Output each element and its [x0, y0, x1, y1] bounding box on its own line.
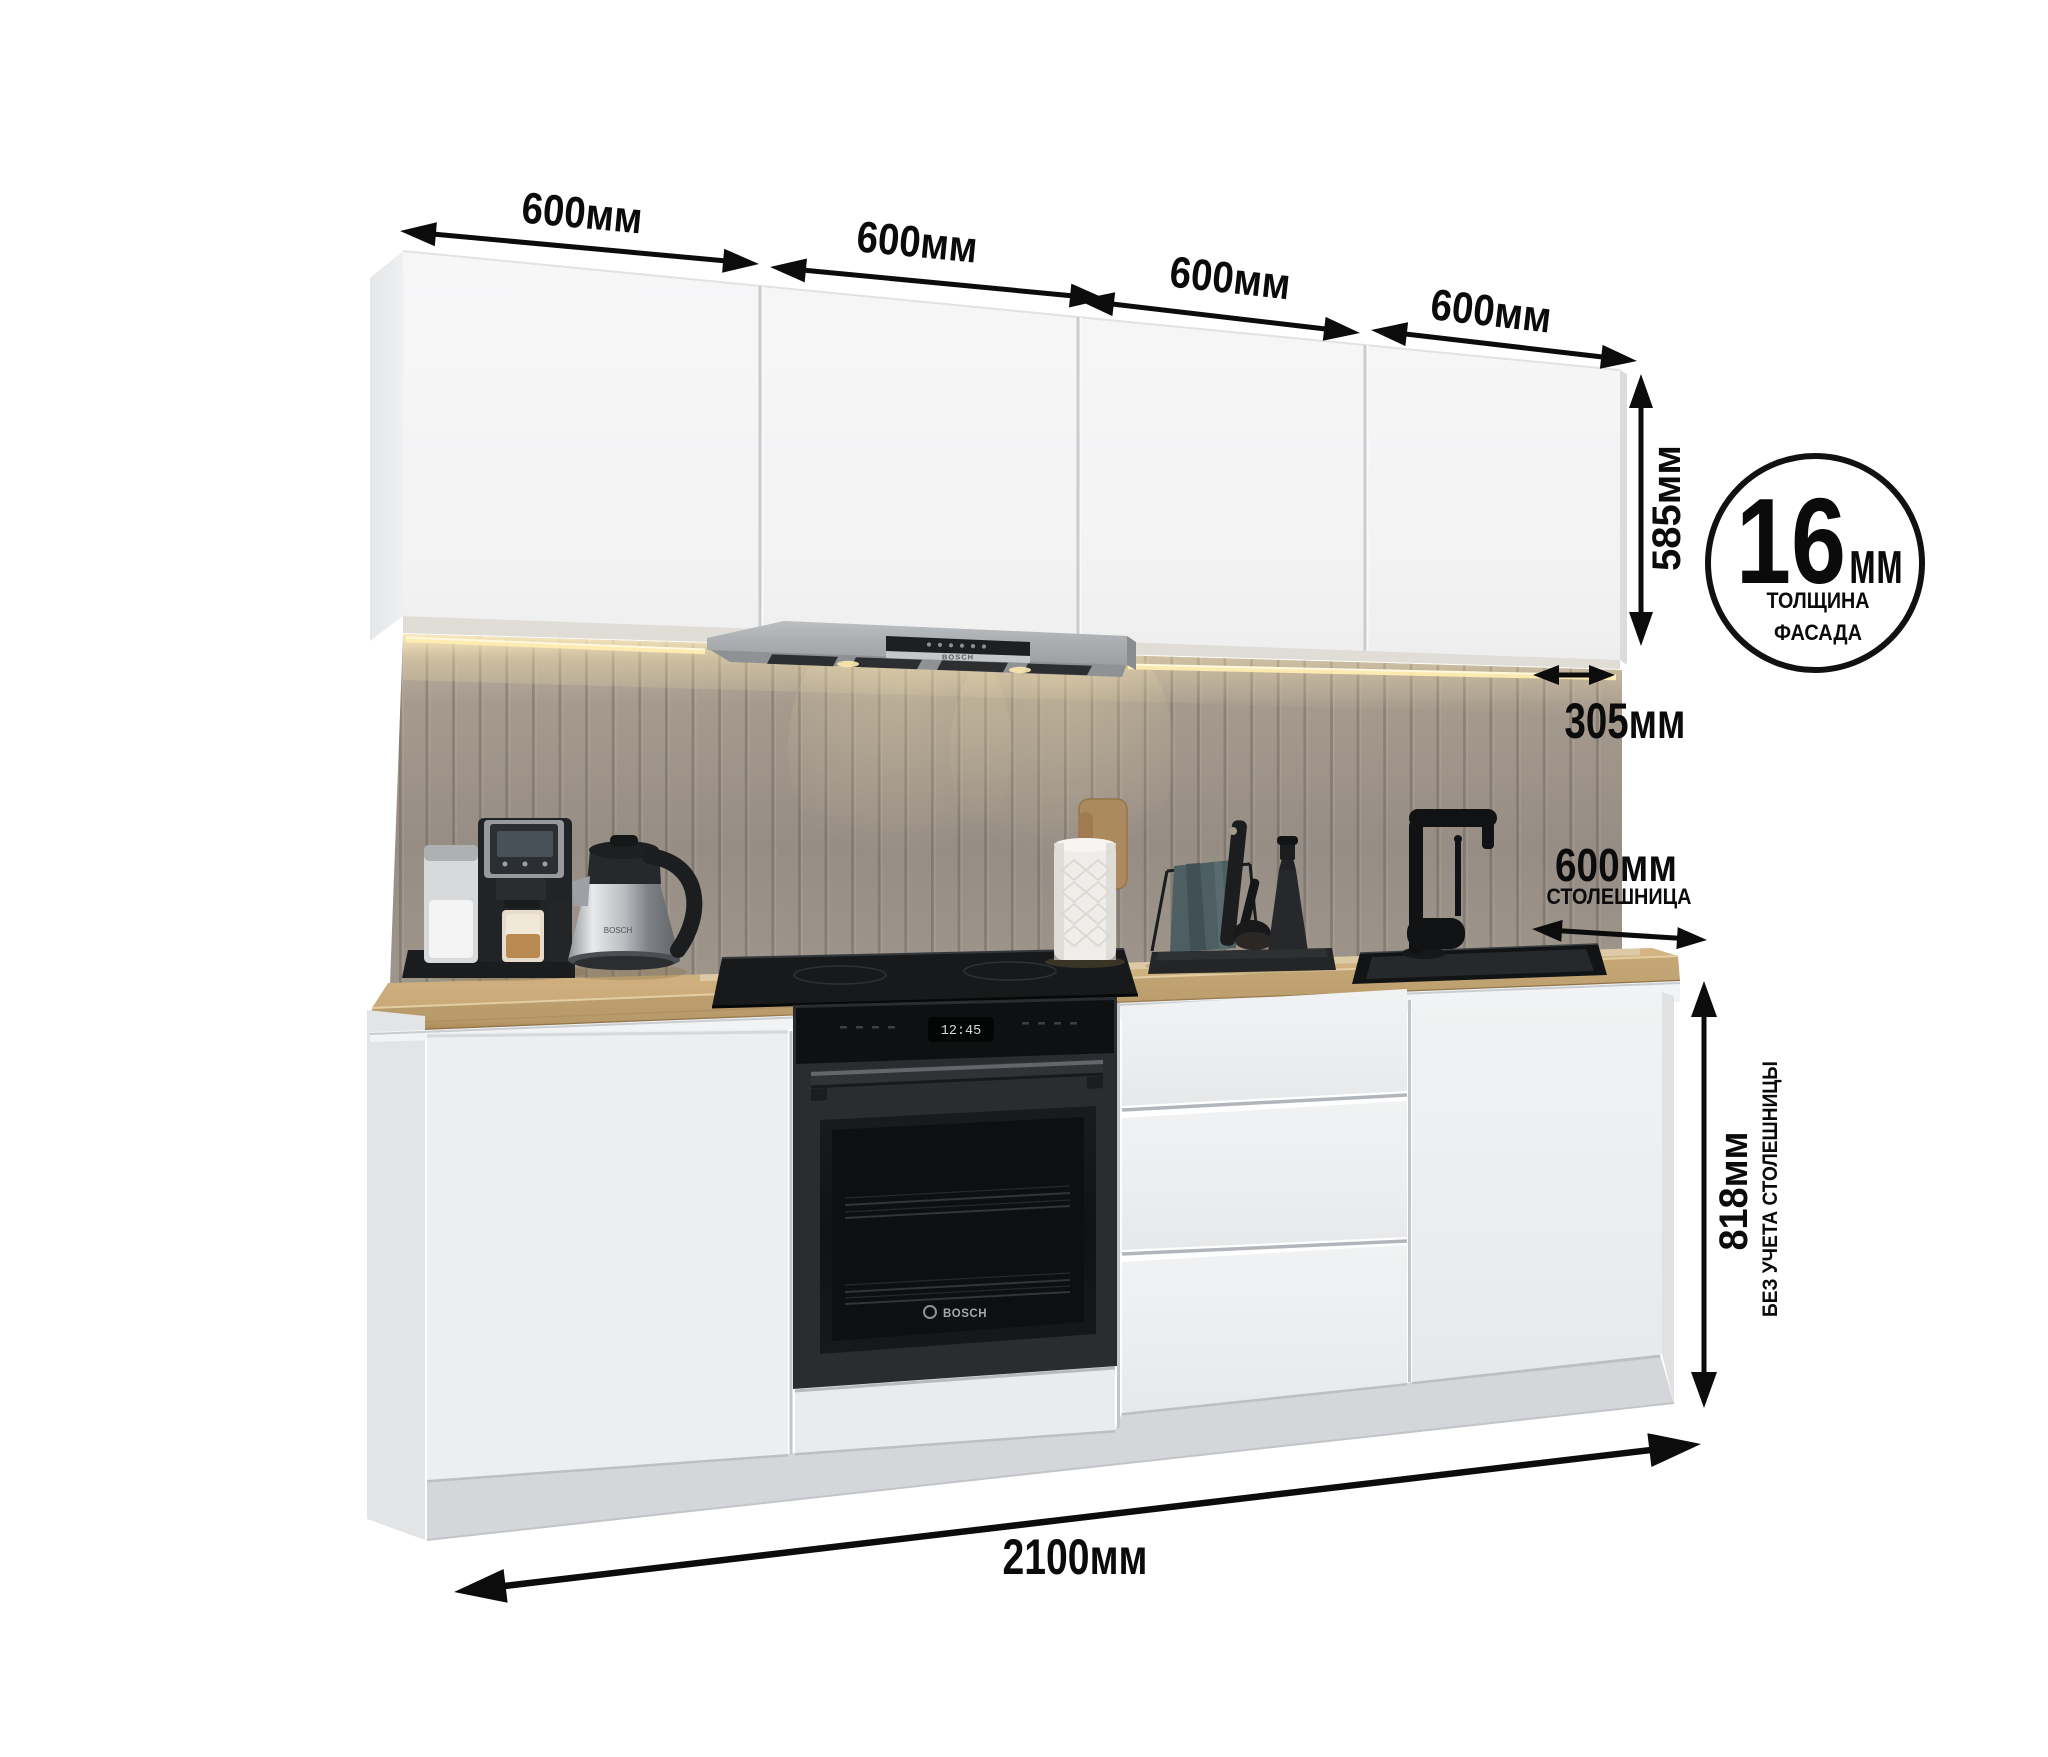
svg-text:BOSCH: BOSCH: [942, 653, 974, 662]
svg-text:ФАСАДА: ФАСАДА: [1774, 620, 1862, 645]
svg-text:305мм: 305мм: [1565, 693, 1686, 749]
svg-text:585мм: 585мм: [1645, 445, 1689, 571]
svg-text:2100мм: 2100мм: [1003, 1529, 1148, 1585]
svg-text:12:45: 12:45: [941, 1024, 982, 1039]
svg-text:818мм: 818мм: [1712, 1132, 1756, 1251]
svg-text:BOSCH: BOSCH: [943, 1308, 987, 1320]
svg-text:BOSCH: BOSCH: [604, 926, 633, 935]
svg-text:мм: мм: [1849, 529, 1903, 596]
svg-text:ТОЛЩИНА: ТОЛЩИНА: [1767, 588, 1870, 613]
svg-text:СТОЛЕШНИЦА: СТОЛЕШНИЦА: [1547, 884, 1692, 909]
svg-text:БЕЗ УЧЕТА СТОЛЕШНИЦЫ: БЕЗ УЧЕТА СТОЛЕШНИЦЫ: [1758, 1061, 1782, 1317]
